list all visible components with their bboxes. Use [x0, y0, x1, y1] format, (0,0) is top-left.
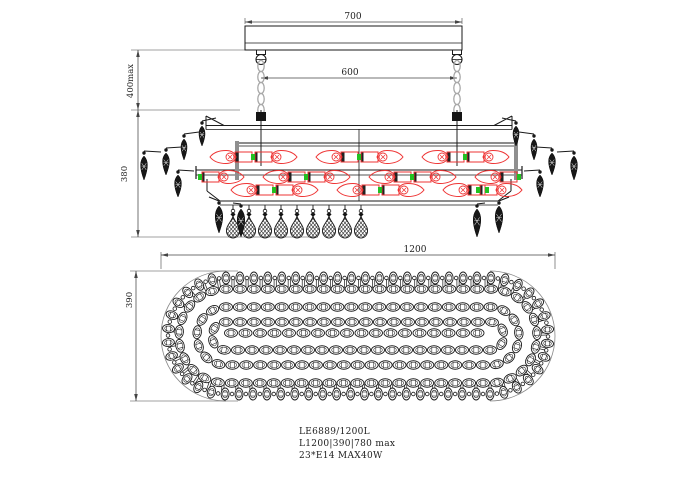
bulb-glass	[398, 184, 424, 197]
crystal-bead	[449, 379, 462, 388]
dim-label-plan-length: 1200	[404, 245, 427, 255]
crystal-drop	[163, 148, 170, 175]
crystal-bead	[291, 388, 299, 400]
crystal-bead	[530, 340, 541, 355]
crystal-bead	[387, 303, 400, 312]
crystal-bead	[351, 361, 364, 370]
lamp-clip	[251, 154, 255, 160]
crystal-bead	[400, 346, 413, 355]
crystal-bead	[268, 361, 281, 370]
crystal-bead	[472, 318, 485, 327]
ceiling-canopy	[245, 26, 462, 65]
crystal-bead	[497, 285, 512, 297]
crystal-bead	[484, 303, 497, 312]
crystal-bead	[359, 285, 372, 294]
crystal-bead	[333, 388, 341, 400]
crystal-bead	[428, 329, 441, 338]
chain-connector	[452, 112, 462, 121]
crystal-bead	[384, 329, 397, 338]
crystal-bead	[275, 285, 288, 294]
crystal-bead	[193, 338, 205, 353]
crystal-bead	[221, 388, 229, 400]
crystal-bead	[331, 285, 344, 294]
crystal-drop	[215, 201, 223, 233]
crystal-bead	[248, 318, 261, 327]
bulb-glass	[324, 171, 350, 184]
crystal-bead	[361, 388, 369, 400]
crystal-bead	[537, 310, 551, 322]
bulb-socket	[467, 152, 484, 162]
bulb-glass	[496, 184, 522, 197]
candle-bulb	[304, 171, 350, 184]
crystal-bead	[317, 303, 330, 312]
crystal-bead	[207, 321, 221, 337]
crystal-bead	[249, 388, 257, 400]
crystal-bead	[250, 272, 258, 284]
crystal-bead	[471, 329, 484, 338]
spec-notes: LE6889/1200L L1200|390|780 max 23*E14 MA…	[299, 427, 395, 461]
crystal-bead	[359, 303, 372, 312]
candle-bulb	[316, 151, 362, 164]
crystal-bead	[282, 361, 295, 370]
crystal-bead	[211, 358, 226, 370]
crystal-bead	[277, 388, 285, 400]
crystal-bead	[490, 359, 505, 370]
crystal-bead	[260, 346, 273, 355]
bulb-glass	[263, 171, 289, 184]
candle-bulb	[369, 171, 415, 184]
crystal-bead	[320, 272, 328, 284]
crystal-bead	[429, 285, 442, 294]
candle-bulb	[410, 171, 456, 184]
crystal-bead	[486, 388, 494, 400]
crystal-bead	[330, 346, 343, 355]
hanger-ball	[256, 50, 266, 65]
crystal-bead	[477, 361, 490, 370]
crystal-bead	[192, 325, 202, 339]
crystal-bead	[490, 377, 504, 387]
bulb-glass	[292, 184, 318, 197]
bulb-glass	[443, 184, 469, 197]
crystal-bead	[444, 388, 452, 400]
crystal-bead	[435, 379, 448, 388]
crystal-bead	[225, 379, 238, 388]
bulb-socket	[276, 185, 293, 195]
crystal-bead	[373, 285, 386, 294]
model-number: LE6889/1200L	[299, 427, 370, 437]
crystal-bead	[360, 318, 373, 327]
crystal-bead	[388, 318, 401, 327]
crystal-drop	[473, 204, 481, 237]
crystal-drop	[513, 121, 519, 146]
crystal-bead	[165, 309, 179, 321]
lamp-clip	[463, 154, 467, 160]
crystal-bead	[459, 272, 467, 284]
crystal-bead	[205, 285, 220, 297]
crystal-bead	[225, 329, 238, 338]
crystal-bead	[318, 318, 331, 327]
crystal-drop	[237, 204, 245, 237]
crystal-bead	[304, 318, 317, 327]
crystal-bead	[207, 273, 218, 287]
crystal-bead	[415, 303, 428, 312]
plan-view	[130, 252, 555, 401]
crystal-bead	[370, 329, 383, 338]
bulb-glass	[210, 151, 236, 164]
dim-label-chain-span: 600	[341, 68, 358, 78]
crystal-bead	[430, 318, 443, 327]
crystal-bead	[463, 379, 476, 388]
crystal-bead	[246, 346, 259, 355]
teardrop-crystal	[260, 205, 303, 240]
crystal-bead	[472, 388, 480, 400]
crystal-bead	[365, 379, 378, 388]
crystal-bead	[387, 285, 400, 294]
crystal-bead	[435, 361, 448, 370]
crystal-drop	[537, 170, 544, 197]
bulb-socket	[361, 152, 378, 162]
crystal-bead	[473, 272, 481, 284]
candle-bulb	[337, 184, 383, 197]
crystal-bead	[379, 361, 392, 370]
crystal-bead	[485, 317, 499, 327]
crystal-bead	[375, 272, 383, 284]
crystal-bead	[233, 303, 246, 312]
bulb-socket	[255, 152, 272, 162]
crystal-bead	[239, 329, 252, 338]
candle-bulb	[463, 151, 509, 164]
bulb-glass	[422, 151, 448, 164]
crystal-bead	[379, 379, 392, 388]
teardrop-crystal	[228, 205, 271, 240]
crystal-bead	[421, 361, 434, 370]
lamp-bulbs	[198, 151, 522, 197]
crystal-bead	[417, 272, 425, 284]
crystal-bead	[389, 272, 397, 284]
candle-bulb	[251, 151, 297, 164]
crystal-bead	[239, 379, 252, 388]
crystal-bead	[289, 285, 302, 294]
crystal-drop	[141, 151, 148, 180]
candle-bulb	[231, 184, 277, 197]
bulb-glass	[377, 151, 403, 164]
teardrop-crystal	[276, 205, 319, 240]
crystal-bead	[331, 303, 344, 312]
crystal-bead	[487, 272, 495, 284]
bulb-socket	[382, 185, 399, 195]
crystal-bead	[288, 346, 301, 355]
crystal-bead	[442, 303, 455, 312]
crystal-bead	[274, 346, 287, 355]
lamp-clip	[304, 174, 308, 180]
crystal-bead	[511, 339, 524, 354]
crystal-bead	[374, 318, 387, 327]
dim-label-plan-width: 390	[125, 292, 135, 308]
crystal-bead	[421, 379, 434, 388]
crystal-bead	[317, 285, 330, 294]
dim-label-body-height: 380	[120, 166, 130, 182]
crystal-bead	[402, 318, 415, 327]
crystal-bead	[283, 329, 296, 338]
crystal-bead	[323, 379, 336, 388]
crystal-bead	[292, 272, 300, 284]
crystal-bead	[498, 386, 509, 400]
crystal-bead	[309, 361, 322, 370]
crystal-bead	[407, 361, 420, 370]
crystal-bead	[428, 346, 441, 355]
crystal-bead	[463, 361, 476, 370]
lamp-clip	[517, 174, 521, 180]
crystal-bead	[220, 318, 233, 327]
lamp-clip	[378, 187, 382, 193]
crystal-bead	[428, 303, 441, 312]
crystal-bead	[373, 303, 386, 312]
crystal-bead	[278, 272, 286, 284]
crystal-bead	[226, 361, 239, 370]
teardrop-crystal	[340, 205, 383, 240]
suspension-chain	[256, 60, 266, 166]
crystal-bead	[444, 318, 457, 327]
crystal-bead	[236, 272, 244, 284]
crystal-bead	[309, 379, 322, 388]
crystal-bead	[477, 379, 490, 388]
crystal-bead	[162, 324, 175, 333]
crystal-bead	[402, 388, 410, 400]
crystal-bead	[374, 388, 382, 400]
crystal-bead	[401, 285, 414, 294]
crystal-bead	[162, 338, 175, 347]
bulb-socket	[308, 172, 325, 182]
crystal-bead	[305, 388, 313, 400]
crystal-bead	[253, 379, 266, 388]
bulb-glass	[231, 184, 257, 197]
crystal-bead	[326, 329, 339, 338]
crystal-bead	[528, 312, 541, 327]
bulb-glass	[271, 151, 297, 164]
crystal-bead	[445, 272, 453, 284]
crystal-bead	[254, 329, 267, 338]
crystal-bead	[344, 346, 357, 355]
crystal-bead	[334, 272, 342, 284]
crystal-bead	[297, 329, 310, 338]
teardrop-crystal	[324, 205, 367, 240]
crystal-bead	[458, 318, 471, 327]
crystal-bead	[337, 379, 350, 388]
crystal-bead	[470, 346, 483, 355]
candle-bulb	[378, 184, 424, 197]
crystal-bead	[532, 326, 541, 340]
crystal-bead	[358, 346, 371, 355]
crystal-bead	[268, 329, 281, 338]
crystal-bead	[458, 388, 466, 400]
elevation-dimension-lines	[131, 18, 462, 237]
crystal-bead	[431, 272, 439, 284]
crystal-bead	[312, 329, 325, 338]
crystal-bead	[295, 379, 308, 388]
teardrop-crystal	[308, 205, 351, 240]
crystal-bead	[235, 388, 243, 400]
chain-connector	[256, 112, 266, 121]
dim-label-suspension-height: 400max	[126, 64, 136, 98]
crystal-bead	[261, 285, 274, 294]
crystal-bead	[337, 361, 350, 370]
crystal-bead	[457, 329, 470, 338]
bulb-glass	[218, 171, 244, 184]
crystal-bead	[247, 285, 260, 294]
crystal-bead	[443, 285, 456, 294]
bottom-teardrop-crystals	[212, 205, 383, 240]
crystal-bead	[346, 318, 359, 327]
crystal-bead	[174, 325, 184, 339]
crystal-bead	[484, 285, 497, 294]
crystal-bead-chains	[162, 272, 554, 400]
lamp-clip	[485, 187, 489, 193]
crystal-bead	[415, 285, 428, 294]
crystal-bead	[541, 325, 554, 334]
crystal-drop	[495, 201, 503, 233]
teardrop-crystal	[244, 205, 287, 240]
crystal-bead	[275, 303, 288, 312]
crystal-bead	[263, 388, 271, 400]
size-spec: L1200|390|780 max	[299, 439, 395, 449]
dim-label-canopy-width: 700	[344, 12, 361, 22]
crystal-bead	[234, 285, 247, 294]
crystal-bead	[471, 285, 484, 294]
crystal-bead	[176, 311, 189, 326]
crystal-bead	[393, 379, 406, 388]
candle-bulb	[272, 184, 318, 197]
candle-bulb	[263, 171, 309, 184]
crystal-bead	[355, 329, 368, 338]
lamp-clip	[272, 187, 276, 193]
bulb-glass	[316, 151, 342, 164]
crystal-bead	[220, 285, 233, 294]
crystal-bead	[407, 379, 420, 388]
bulb-socket	[414, 172, 431, 182]
crystal-bead	[365, 361, 378, 370]
teardrop-crystal	[292, 205, 335, 240]
crystal-drop	[571, 151, 578, 180]
crystal-bead	[386, 346, 399, 355]
crystal-bead	[514, 326, 524, 340]
crystal-bead	[484, 346, 497, 355]
crystal-bead	[456, 346, 469, 355]
lamp-clip	[357, 154, 361, 160]
suspension-chain	[452, 60, 462, 166]
crystal-bead	[281, 379, 294, 388]
crystal-bead	[399, 329, 412, 338]
crystal-bead	[347, 388, 355, 400]
crystal-bead	[306, 272, 314, 284]
crystal-bead	[240, 361, 253, 370]
crystal-bead	[264, 272, 272, 284]
hanger-ball	[452, 50, 462, 65]
crystal-bead	[222, 272, 230, 284]
crystal-bead	[316, 346, 329, 355]
crystal-bead	[388, 388, 396, 400]
crystal-bead	[351, 379, 364, 388]
crystal-bead	[247, 303, 260, 312]
crystal-bead	[414, 346, 427, 355]
elevation-view	[131, 18, 577, 240]
lamp-clip	[476, 187, 480, 193]
bulb-glass	[430, 171, 456, 184]
crystal-bead	[393, 361, 406, 370]
crystal-bead	[341, 329, 354, 338]
bulb-glass	[475, 171, 501, 184]
crystal-bead	[296, 361, 309, 370]
crystal-bead	[289, 303, 302, 312]
candle-bulb	[210, 151, 256, 164]
crystal-bead	[232, 346, 245, 355]
crystal-bead	[372, 346, 385, 355]
crystal-drop	[549, 148, 556, 175]
crystal-bead	[319, 388, 327, 400]
bulb-socket	[202, 172, 219, 182]
crystal-drop	[175, 170, 182, 197]
crystal-bead	[220, 303, 233, 312]
crystal-bead	[262, 318, 275, 327]
crystal-bead	[303, 303, 316, 312]
crystal-drop	[199, 121, 205, 146]
crystal-bead	[442, 329, 455, 338]
bulb-glass	[483, 151, 509, 164]
crystal-bead	[254, 361, 267, 370]
lamp-clip	[410, 174, 414, 180]
bulb-glass	[369, 171, 395, 184]
crystal-bead	[457, 285, 470, 294]
crystal-bead	[345, 303, 358, 312]
crystal-bead	[345, 285, 358, 294]
crystal-bead	[401, 303, 414, 312]
lamp-clip	[198, 174, 202, 180]
crystal-bead	[276, 318, 289, 327]
candle-bulb	[422, 151, 468, 164]
crystal-bead	[442, 346, 455, 355]
crystal-bead	[430, 388, 438, 400]
crystal-bead	[290, 318, 303, 327]
crystal-bead	[495, 336, 509, 352]
crystal-bead	[217, 345, 231, 355]
crystal-bead	[323, 361, 336, 370]
crystal-bead	[416, 318, 429, 327]
crystal-bead	[470, 303, 483, 312]
crystal-bead	[234, 318, 247, 327]
crystal-bead	[348, 272, 356, 284]
candle-bulb	[357, 151, 403, 164]
crystal-bead	[174, 339, 185, 353]
crystal-bead	[537, 351, 551, 363]
crystal-bead	[449, 361, 462, 370]
crystal-bead	[361, 272, 369, 284]
crystal-bead	[403, 272, 411, 284]
crystal-bead	[541, 339, 554, 348]
crystal-bead	[413, 329, 426, 338]
chandelier-technical-drawing: 700 600 400max 380 1200 390 LE6889/1200L…	[0, 0, 700, 495]
lamp-spec: 23*E14 MAX40W	[299, 451, 383, 461]
crystal-bead	[416, 388, 424, 400]
crystal-bead	[303, 285, 316, 294]
crystal-bead	[267, 379, 280, 388]
crystal-bead	[332, 318, 345, 327]
crystal-bead	[456, 303, 469, 312]
candle-bulb	[476, 184, 522, 197]
crystal-bead	[261, 303, 274, 312]
crystal-bead	[302, 346, 315, 355]
